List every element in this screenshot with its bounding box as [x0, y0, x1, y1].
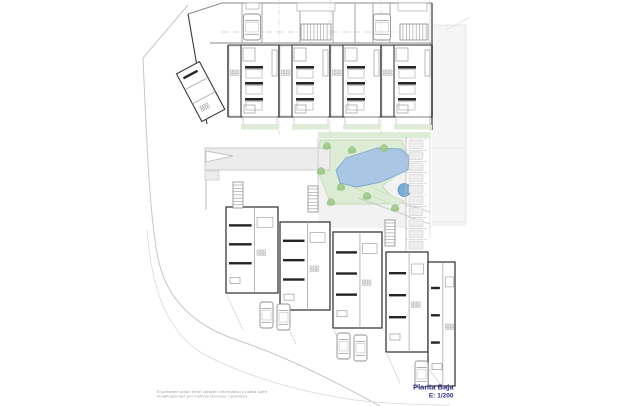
interior-wall — [389, 316, 406, 318]
interior-wall — [283, 278, 305, 280]
bed — [246, 101, 262, 110]
bed — [348, 69, 364, 78]
table-chairs-symbol — [339, 70, 341, 72]
parked-car-outline — [409, 152, 423, 160]
kitchen-counter — [374, 50, 379, 76]
staircase — [385, 220, 395, 246]
terrace — [331, 46, 343, 116]
table-chairs-symbol — [336, 70, 338, 72]
balcony — [345, 117, 379, 125]
bed — [348, 101, 364, 110]
bed — [348, 85, 364, 94]
adjacent-plot-area — [432, 25, 466, 226]
kitchen-counter — [425, 50, 430, 76]
parcel-line — [226, 293, 243, 330]
interior-wall — [296, 98, 314, 101]
interior-wall — [398, 98, 416, 101]
table-chairs-symbol — [282, 70, 284, 72]
garage-door — [398, 3, 427, 11]
green-strip — [318, 132, 430, 138]
interior-wall — [431, 314, 440, 316]
bathroom — [396, 48, 408, 61]
interior-wall — [389, 272, 406, 274]
interior-wall — [347, 82, 365, 85]
parked-car-outline — [409, 163, 423, 171]
table-chairs-symbol — [333, 73, 335, 75]
disclaimer-line-2: modificaciones por motivos técnicos o ju… — [157, 394, 249, 399]
table-chairs-symbol — [231, 73, 233, 75]
parked-car-outline — [409, 141, 423, 149]
terrace — [229, 46, 241, 116]
bed — [399, 101, 415, 110]
table-chairs-symbol — [390, 70, 392, 72]
parked-car-outline — [409, 241, 423, 249]
bed — [399, 85, 415, 94]
bed — [362, 244, 377, 254]
table-chairs-symbol — [234, 70, 236, 72]
bed — [297, 101, 313, 110]
staircase — [233, 182, 243, 208]
table-chairs-symbol — [339, 73, 341, 75]
bed — [310, 233, 325, 243]
top-building-block — [176, 0, 432, 136]
interior-wall — [245, 82, 263, 85]
garden-strip — [292, 125, 330, 130]
car — [354, 335, 367, 361]
table-chairs-symbol — [384, 73, 386, 75]
staircase — [301, 24, 331, 40]
parked-car-outline — [409, 219, 423, 227]
interior-wall — [245, 66, 263, 69]
parked-car-outline — [409, 208, 423, 216]
interior-wall — [229, 224, 252, 226]
plan-scale: E: 1/200 — [429, 393, 454, 400]
table-chairs-symbol — [288, 70, 290, 72]
interior-wall — [347, 66, 365, 69]
parked-car-outline — [409, 174, 423, 182]
bed — [412, 264, 424, 274]
table-chairs-symbol — [285, 70, 287, 72]
apartment-unit — [280, 222, 330, 310]
parcel-line — [386, 352, 400, 383]
bathroom — [294, 48, 306, 61]
interior-wall — [283, 240, 305, 242]
access-ramp — [205, 148, 330, 170]
bed — [297, 69, 313, 78]
table-chairs-symbol — [237, 70, 239, 72]
parked-car-outline — [409, 230, 423, 238]
table-chairs-symbol — [237, 73, 239, 75]
interior-wall — [229, 243, 252, 245]
table-chairs-symbol — [282, 73, 284, 75]
garage-door — [246, 3, 259, 9]
garden-strip — [394, 125, 432, 130]
interior-wall — [245, 98, 263, 101]
interior-wall — [347, 98, 365, 101]
table-chairs-symbol — [285, 73, 287, 75]
interior-wall — [431, 287, 440, 289]
garden-strip — [241, 125, 279, 130]
kitchen-counter — [323, 50, 328, 76]
corner-apartment-unit — [176, 62, 224, 122]
table-chairs-symbol — [333, 70, 335, 72]
interior-wall — [398, 82, 416, 85]
interior-wall — [389, 294, 406, 296]
interior-wall — [229, 262, 252, 264]
table-chairs-symbol — [390, 73, 392, 75]
garage-door — [297, 3, 335, 11]
table-chairs-symbol — [288, 73, 290, 75]
apartment-unit — [226, 207, 278, 293]
parked-car-outline — [409, 185, 423, 193]
car — [337, 333, 350, 359]
table-chairs-symbol — [387, 73, 389, 75]
bed — [246, 85, 262, 94]
bed — [257, 217, 273, 227]
car — [244, 14, 261, 40]
interior-wall — [296, 82, 314, 85]
apartment-unit — [428, 262, 455, 386]
balcony — [294, 117, 328, 125]
bed — [297, 85, 313, 94]
bed — [246, 69, 262, 78]
floor-plan-page: El presente plano tiene carácter informa… — [0, 0, 620, 406]
floor-plan-drawing: El presente plano tiene carácter informa… — [0, 0, 620, 406]
interior-wall — [431, 341, 440, 343]
bathroom — [243, 48, 255, 61]
interior-wall — [336, 251, 357, 253]
interior-wall — [283, 259, 305, 261]
interior-wall — [398, 66, 416, 69]
bed — [445, 277, 453, 287]
interior-wall — [296, 66, 314, 69]
table-chairs-symbol — [336, 73, 338, 75]
staircase — [400, 24, 428, 40]
bed — [399, 69, 415, 78]
plan-title: Planta Baja — [413, 383, 454, 392]
balcony — [396, 117, 430, 125]
table-chairs-symbol — [384, 70, 386, 72]
balcony — [243, 117, 277, 125]
garden-strip — [343, 125, 381, 130]
table-chairs-symbol — [234, 73, 236, 75]
terrace — [280, 46, 292, 116]
table-chairs-symbol — [231, 70, 233, 72]
interior-wall — [336, 293, 357, 295]
car — [260, 302, 273, 328]
table-chairs-symbol — [387, 70, 389, 72]
bathroom — [345, 48, 357, 61]
staircase — [308, 186, 318, 212]
service-block — [205, 171, 219, 180]
apartment-unit — [386, 252, 428, 352]
adjacent-plot — [430, 0, 470, 238]
apartment-unit — [333, 232, 382, 328]
interior-wall — [336, 272, 357, 274]
car — [374, 14, 391, 40]
car — [277, 304, 290, 330]
terrace — [382, 46, 394, 116]
kitchen-counter — [272, 50, 277, 76]
parked-car-outline — [409, 197, 423, 205]
